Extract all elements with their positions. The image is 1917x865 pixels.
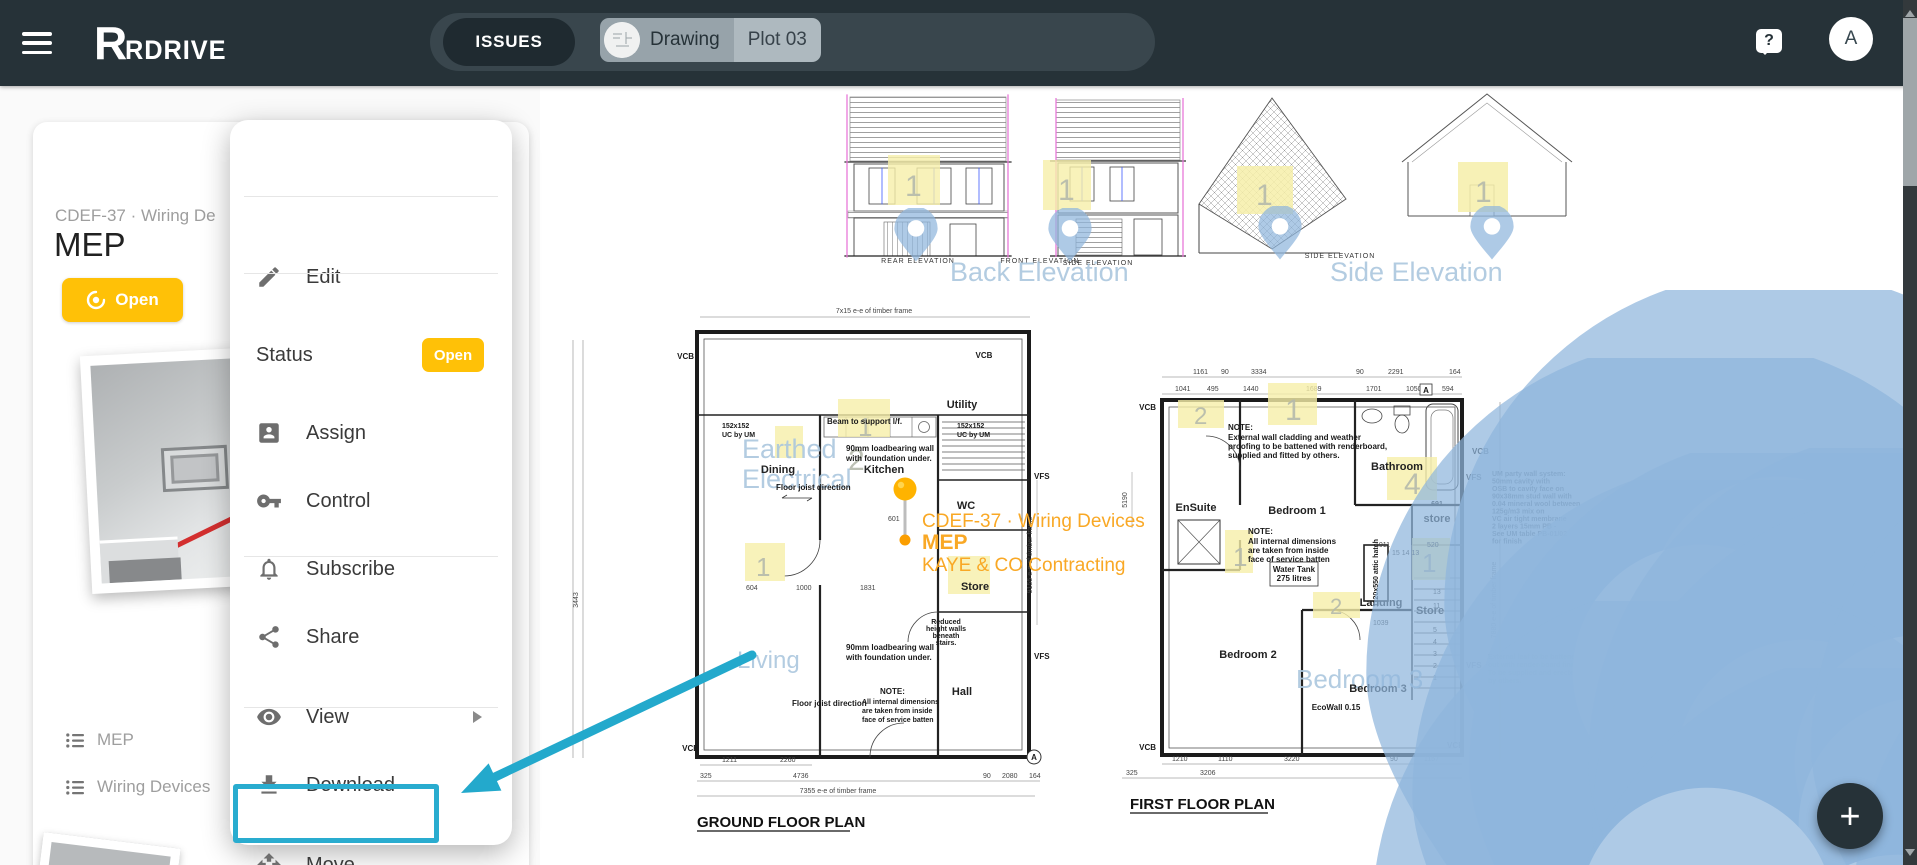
svg-text:1: 1: [905, 170, 922, 203]
svg-text:1: 1: [1058, 174, 1075, 207]
download-icon: [256, 772, 282, 798]
svg-text:90mm loadbearing wall: 90mm loadbearing wall: [846, 444, 934, 453]
pin-note-title: MEP: [922, 531, 968, 554]
svg-text:VCB: VCB: [682, 744, 699, 753]
svg-text:275 litres: 275 litres: [1277, 574, 1312, 583]
svg-text:stairs.: stairs.: [936, 640, 957, 647]
svg-text:90: 90: [1221, 369, 1229, 376]
status-open-badge[interactable]: Open: [422, 338, 484, 372]
move-icon: [256, 852, 282, 865]
svg-text:3206: 3206: [1200, 770, 1216, 777]
svg-text:supplied and fitted by others.: supplied and fitted by others.: [1228, 451, 1340, 460]
svg-text:Kitchen: Kitchen: [864, 464, 905, 476]
svg-text:325: 325: [700, 773, 712, 780]
svg-text:1: 1: [1256, 179, 1273, 212]
svg-text:164: 164: [1449, 369, 1461, 376]
status-target-icon: [86, 290, 106, 310]
svg-text:All internal dimensions: All internal dimensions: [862, 699, 939, 706]
pin-note-ref: CDEF-37 · Wiring Devices: [922, 511, 1145, 532]
svg-text:beneath: beneath: [933, 633, 960, 640]
open-button-label: Open: [115, 290, 158, 310]
svg-text:VCB: VCB: [677, 352, 694, 361]
menu-item-move[interactable]: Move: [230, 841, 512, 865]
svg-text:7x15 e-e of timber frame: 7x15 e-e of timber frame: [836, 308, 912, 315]
menu-divider: [244, 273, 498, 274]
hamburger-menu-icon[interactable]: [22, 32, 52, 54]
issue-title: MEP: [54, 226, 126, 264]
svg-text:proofing to be battened with r: proofing to be battened with renderboard…: [1228, 442, 1387, 451]
svg-text:1110: 1110: [1218, 756, 1233, 763]
plus-icon: +: [1839, 795, 1860, 837]
chip-type-label: Drawing: [650, 29, 720, 51]
user-avatar[interactable]: A: [1829, 17, 1873, 61]
submenu-chevron-icon: [473, 711, 482, 723]
svg-text:UC by UM: UC by UM: [722, 432, 755, 439]
svg-text:VCB: VCB: [976, 351, 993, 360]
svg-text:height walls: height walls: [926, 626, 966, 633]
svg-text:Beam to support l/f.: Beam to support l/f.: [827, 417, 902, 426]
svg-text:1211: 1211: [722, 757, 737, 764]
svg-text:are taken from inside: are taken from inside: [862, 708, 933, 715]
tag-item-mep[interactable]: MEP: [66, 730, 134, 750]
svg-text:164: 164: [1029, 773, 1041, 780]
svg-text:2080: 2080: [1002, 773, 1018, 780]
svg-text:1050: 1050: [1406, 386, 1422, 393]
menu-item-control[interactable]: Control: [230, 477, 512, 525]
chip-document-name: Plot 03: [748, 29, 807, 51]
svg-text:1: 1: [756, 552, 770, 582]
svg-text:1: 1: [1233, 542, 1247, 572]
svg-text:152x152: 152x152: [722, 423, 749, 430]
svg-text:2: 2: [1194, 403, 1207, 430]
app-logo[interactable]: R RDRIVE: [94, 20, 233, 66]
share-icon: [256, 624, 282, 650]
menu-divider: [244, 196, 498, 197]
tag-item-wiring-devices[interactable]: Wiring Devices: [66, 777, 210, 797]
tag-label: Wiring Devices: [97, 777, 210, 797]
svg-text:1831: 1831: [860, 585, 876, 592]
svg-text:VCB: VCB: [1139, 403, 1156, 412]
issue-reference: CDEF-37 · Wiring De: [55, 206, 216, 226]
watermark-back-elevation: Back Elevation: [950, 257, 1129, 287]
issues-button[interactable]: ISSUES: [443, 18, 575, 66]
svg-text:594: 594: [1442, 386, 1454, 393]
menu-item-subscribe[interactable]: Subscribe: [230, 545, 512, 593]
svg-text:1011: 1011: [1375, 542, 1390, 549]
drawing-thumbnail-icon: [604, 22, 640, 58]
ff-plan-title: FIRST FLOOR PLAN: [1130, 796, 1275, 813]
svg-text:5190: 5190: [1122, 492, 1129, 508]
add-fab-button[interactable]: +: [1817, 783, 1883, 849]
help-icon[interactable]: ?: [1756, 29, 1782, 53]
scrollbar-thumb[interactable]: [1903, 18, 1917, 186]
svg-text:Bedroom 2: Bedroom 2: [1219, 649, 1276, 661]
second-photo-thumbnail[interactable]: [31, 832, 180, 865]
svg-text:1440: 1440: [1243, 386, 1259, 393]
svg-text:Floor joist direction: Floor joist direction: [792, 699, 867, 708]
status-open-button[interactable]: Open: [62, 278, 183, 322]
menu-item-edit[interactable]: Edit: [230, 253, 512, 301]
top-app-bar: R RDRIVE ISSUES Drawing Plot 03 ? A: [0, 0, 1917, 86]
svg-text:2291: 2291: [1388, 369, 1404, 376]
svg-text:NOTE:: NOTE:: [880, 687, 905, 696]
scroll-up-arrow-icon[interactable]: [1905, 5, 1915, 17]
menu-divider: [244, 707, 498, 708]
svg-text:A: A: [1423, 386, 1429, 395]
svg-text:are taken from inside: are taken from inside: [1248, 546, 1329, 555]
svg-text:EnSuite: EnSuite: [1176, 502, 1217, 514]
svg-text:UC by UM: UC by UM: [957, 432, 990, 439]
gf-plan-title: GROUND FLOOR PLAN: [697, 814, 865, 831]
watermark-living: Living: [737, 647, 800, 674]
svg-text:VFS: VFS: [1034, 472, 1050, 481]
menu-item-share[interactable]: Share: [230, 613, 512, 661]
svg-text:4736: 4736: [793, 773, 809, 780]
list-icon: [66, 733, 84, 748]
svg-text:Bedroom 1: Bedroom 1: [1268, 505, 1325, 517]
menu-item-download[interactable]: Download: [230, 761, 512, 809]
bell-icon: [256, 556, 282, 582]
svg-text:2260: 2260: [780, 757, 796, 764]
scroll-down-arrow-icon[interactable]: [1905, 849, 1915, 861]
svg-text:Store: Store: [961, 581, 989, 593]
menu-item-assign[interactable]: Assign: [230, 409, 512, 457]
svg-text:VFS: VFS: [1034, 652, 1050, 661]
assign-person-icon: [256, 420, 282, 446]
document-chip[interactable]: Drawing Plot 03: [600, 18, 821, 62]
list-icon: [66, 780, 84, 795]
key-icon: [256, 488, 282, 514]
svg-text:A: A: [1031, 753, 1037, 762]
ceiling-vent: [161, 445, 229, 492]
svg-text:1: 1: [1285, 394, 1302, 427]
svg-text:All internal dimensions: All internal dimensions: [1248, 537, 1337, 546]
pencil-icon: [256, 264, 282, 290]
menu-divider: [244, 556, 498, 557]
ceiling-photo: [90, 358, 241, 583]
svg-text:Bathroom: Bathroom: [1371, 461, 1423, 473]
svg-text:Utility: Utility: [947, 399, 978, 411]
logo-wordmark: RDRIVE: [125, 35, 227, 66]
svg-text:Dining: Dining: [761, 464, 795, 476]
svg-text:7355 e-e of timber frame: 7355 e-e of timber frame: [800, 788, 877, 795]
svg-text:1161: 1161: [1193, 369, 1208, 376]
svg-text:Reduced: Reduced: [931, 619, 961, 626]
menu-item-view[interactable]: View: [230, 693, 512, 741]
svg-text:Water Tank: Water Tank: [1273, 565, 1316, 574]
svg-text:90: 90: [1356, 369, 1364, 376]
svg-text:1000: 1000: [796, 585, 812, 592]
logo-r-glyph: R: [94, 20, 125, 66]
svg-text:Hall: Hall: [952, 686, 972, 698]
svg-text:152x152: 152x152: [957, 423, 984, 430]
svg-text:face of service batten: face of service batten: [862, 717, 934, 724]
context-menu: Edit Status Open Assign Control Subscrib…: [230, 120, 512, 845]
app-window: 1 REAR ELEVATION 1 FRONT ELEVATION: [0, 0, 1917, 865]
svg-text:601: 601: [888, 516, 900, 523]
context-pill: ISSUES Drawing Plot 03: [430, 13, 1155, 71]
pin-note-company: KAYE & CO Contracting: [922, 555, 1125, 576]
svg-text:Floor joist direction: Floor joist direction: [776, 483, 851, 492]
svg-text:495: 495: [1207, 386, 1219, 393]
svg-text:604: 604: [746, 585, 758, 592]
svg-text:1041: 1041: [1175, 386, 1191, 393]
svg-text:90: 90: [983, 773, 991, 780]
svg-text:with foundation under.: with foundation under.: [845, 454, 932, 463]
svg-text:90mm loadbearing wall: 90mm loadbearing wall: [846, 643, 934, 652]
svg-text:1: 1: [1475, 176, 1492, 209]
svg-text:External wall cladding and wea: External wall cladding and weather: [1228, 433, 1361, 442]
tag-label: MEP: [97, 730, 134, 750]
svg-text:3334: 3334: [1251, 369, 1267, 376]
svg-text:EcoWall 0.15: EcoWall 0.15: [1312, 703, 1361, 712]
watermark-earthed: Earthed: [742, 434, 837, 464]
page-scrollbar[interactable]: [1903, 0, 1917, 865]
issue-photo-thumbnail[interactable]: [80, 348, 252, 594]
svg-text:3220: 3220: [1284, 756, 1300, 763]
svg-text:2: 2: [1330, 594, 1342, 619]
svg-text:VCB: VCB: [1139, 743, 1156, 752]
svg-text:3443: 3443: [573, 592, 580, 608]
svg-text:1701: 1701: [1366, 386, 1382, 393]
svg-text:with foundation under.: with foundation under.: [845, 653, 932, 662]
svg-text:NOTE:: NOTE:: [1248, 527, 1273, 536]
watermark-side-elevation: Side Elevation: [1330, 257, 1503, 287]
svg-text:1210: 1210: [1172, 756, 1188, 763]
svg-text:325: 325: [1126, 770, 1138, 777]
svg-text:NOTE:: NOTE:: [1228, 423, 1253, 432]
